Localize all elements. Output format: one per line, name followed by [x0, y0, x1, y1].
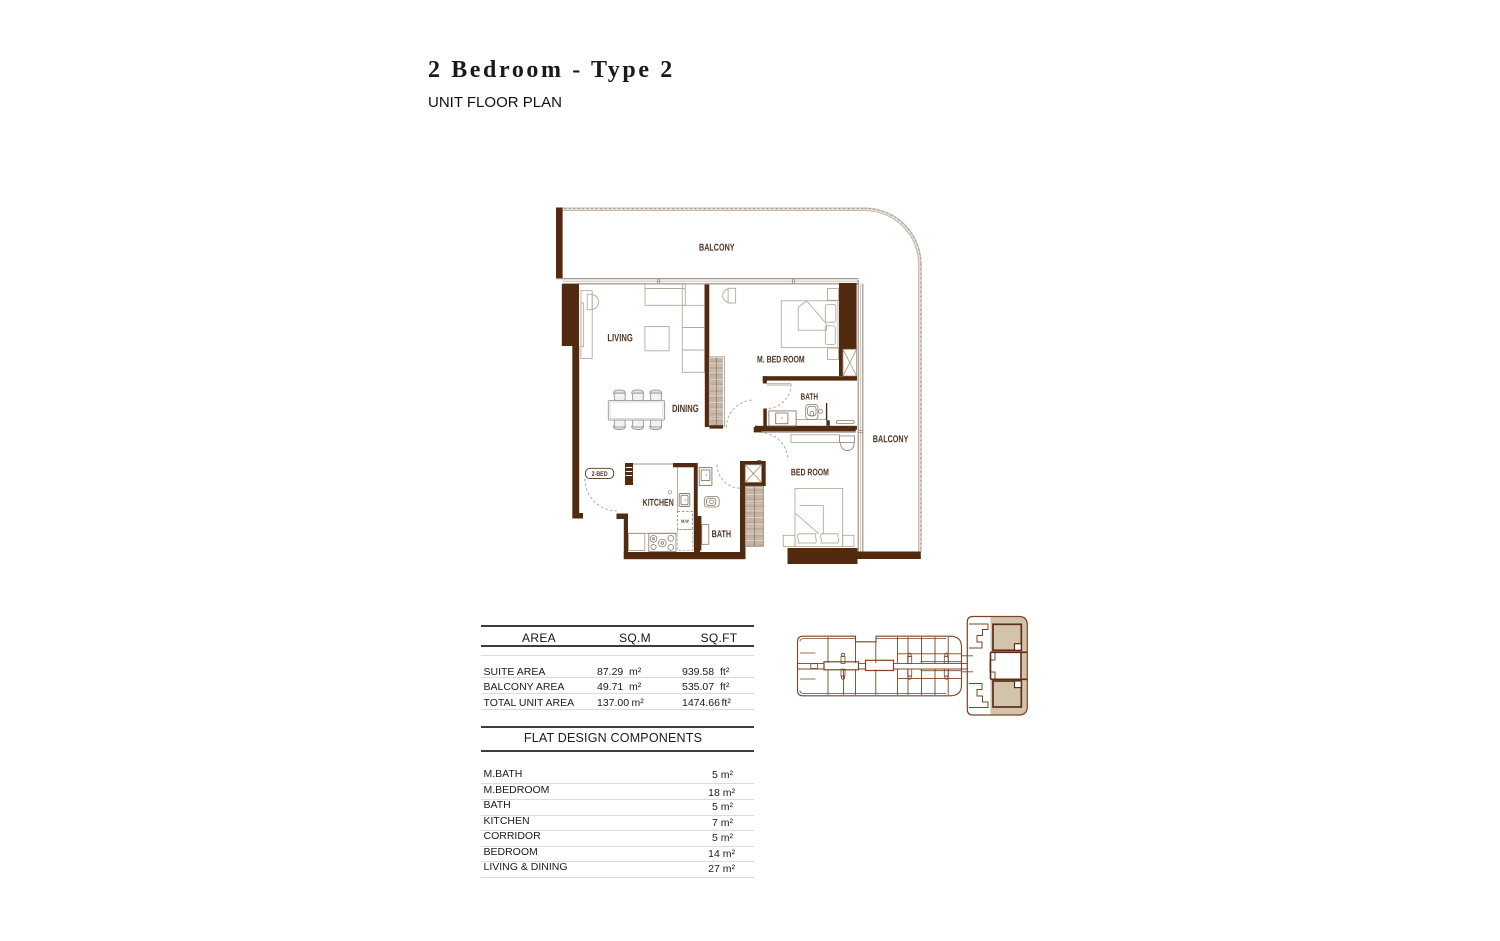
svg-text:2-BED: 2-BED [592, 471, 608, 478]
svg-text:BATH: BATH [801, 392, 819, 402]
svg-text:LIVING: LIVING [607, 332, 632, 344]
svg-text:M. BED ROOM: M. BED ROOM [757, 354, 805, 365]
svg-text:BALCONY: BALCONY [699, 243, 735, 254]
svg-text:KITCHEN: KITCHEN [643, 498, 674, 509]
svg-text:BALCONY: BALCONY [873, 434, 909, 445]
svg-text:M.W: M.W [681, 519, 689, 524]
svg-text:BATH: BATH [712, 529, 731, 540]
svg-text:BED ROOM: BED ROOM [791, 467, 829, 478]
svg-text:DINING: DINING [672, 403, 699, 415]
